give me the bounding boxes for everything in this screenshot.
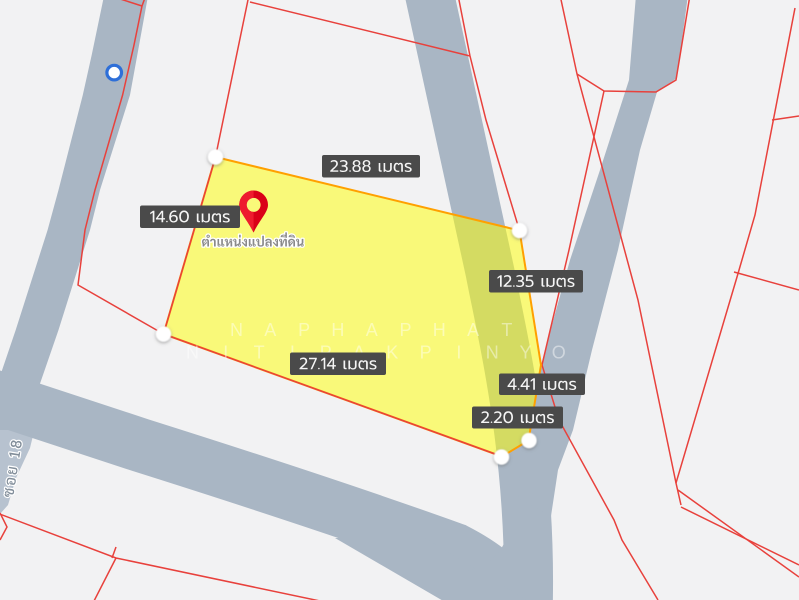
svg-text:H: H [433, 320, 446, 340]
svg-text:I: I [456, 343, 461, 363]
svg-text:A: A [366, 320, 378, 340]
svg-text:P: P [420, 343, 432, 363]
svg-text:N: N [230, 320, 243, 340]
svg-text:T: T [501, 320, 512, 340]
svg-text:N: N [186, 343, 199, 363]
svg-text:K: K [386, 343, 398, 363]
svg-text:P: P [399, 320, 411, 340]
svg-text:T: T [254, 343, 265, 363]
svg-text:I: I [223, 343, 228, 363]
svg-text:A: A [467, 320, 479, 340]
svg-text:N: N [486, 343, 499, 363]
svg-text:Y: Y [519, 343, 531, 363]
svg-text:O: O [552, 343, 566, 363]
svg-text:H: H [331, 320, 344, 340]
svg-text:P: P [298, 320, 310, 340]
svg-text:A: A [264, 320, 276, 340]
